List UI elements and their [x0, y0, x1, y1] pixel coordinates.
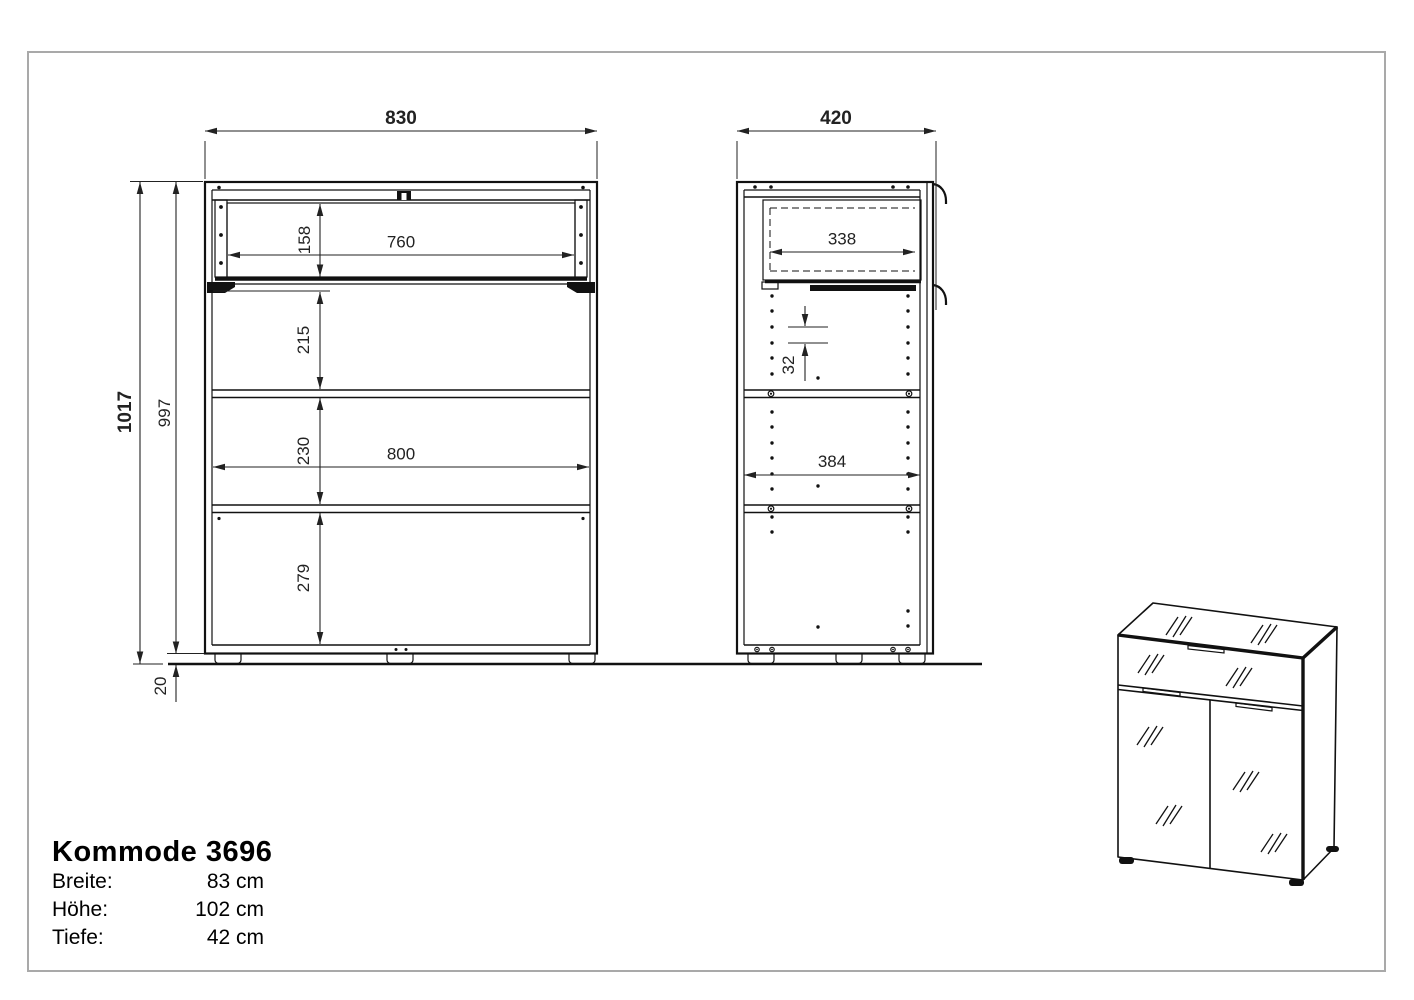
spec-label: Breite: [52, 868, 164, 896]
spec-label: Höhe: [52, 896, 164, 924]
spec-label: Tiefe: [52, 924, 164, 952]
dim-hole-pitch: 32 [779, 356, 798, 375]
iso-right-face [1303, 627, 1337, 880]
dim-inner-depth: 384 [818, 452, 846, 471]
spec-row-depth: Tiefe: 42 cm [52, 924, 272, 952]
rear-hook-mid [933, 285, 946, 305]
front-dimensions: 830 1017 997 20 158 760 215 230 800 279 [115, 108, 597, 702]
spec-row-width: Breite: 83 cm [52, 868, 272, 896]
side-view [737, 182, 946, 664]
dim-drawer-depth: 338 [828, 230, 856, 249]
drawer-slide-side [810, 285, 916, 291]
spec-value: 83 cm [164, 868, 264, 896]
drawer-slide-right [567, 282, 595, 293]
isometric-view [1118, 603, 1339, 886]
dim-inner-width: 800 [387, 445, 415, 464]
title-block: Kommode 3696 Breite: 83 cm Höhe: 102 cm … [52, 836, 272, 952]
dim-middle-gap: 230 [294, 437, 313, 465]
dim-side-depth: 420 [820, 108, 852, 129]
rear-hook-top [933, 184, 946, 204]
spec-value: 42 cm [164, 924, 264, 952]
dim-upper-gap: 215 [294, 326, 313, 354]
dim-drawer-height: 158 [295, 226, 314, 254]
spec-row-height: Höhe: 102 cm [52, 896, 272, 924]
dim-front-width: 830 [385, 108, 417, 129]
dim-front-total-height: 1017 [115, 391, 136, 433]
front-view [205, 182, 597, 664]
dim-front-body-height: 997 [155, 399, 174, 427]
dim-front-feet-height: 20 [151, 677, 170, 696]
dim-lower-gap: 279 [294, 564, 313, 592]
spec-value: 102 cm [164, 896, 264, 924]
side-dimensions: 420 338 32 384 [737, 108, 936, 475]
product-title: Kommode 3696 [52, 836, 272, 868]
dim-drawer-width: 760 [387, 233, 415, 252]
